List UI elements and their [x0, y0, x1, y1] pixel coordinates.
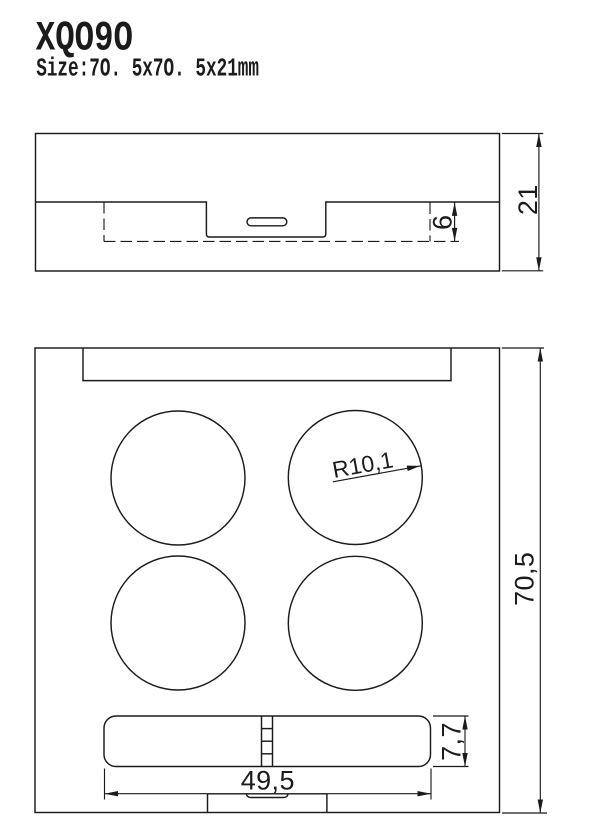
svg-text:6: 6: [428, 215, 458, 230]
svg-text:21: 21: [513, 184, 543, 215]
svg-text:70,5: 70,5: [510, 552, 540, 606]
svg-text:49,5: 49,5: [241, 766, 295, 796]
svg-text:Size:7O. 5x7O. 5x21mm: Size:7O. 5x7O. 5x21mm: [36, 55, 259, 84]
svg-text:7,7: 7,7: [436, 722, 466, 761]
